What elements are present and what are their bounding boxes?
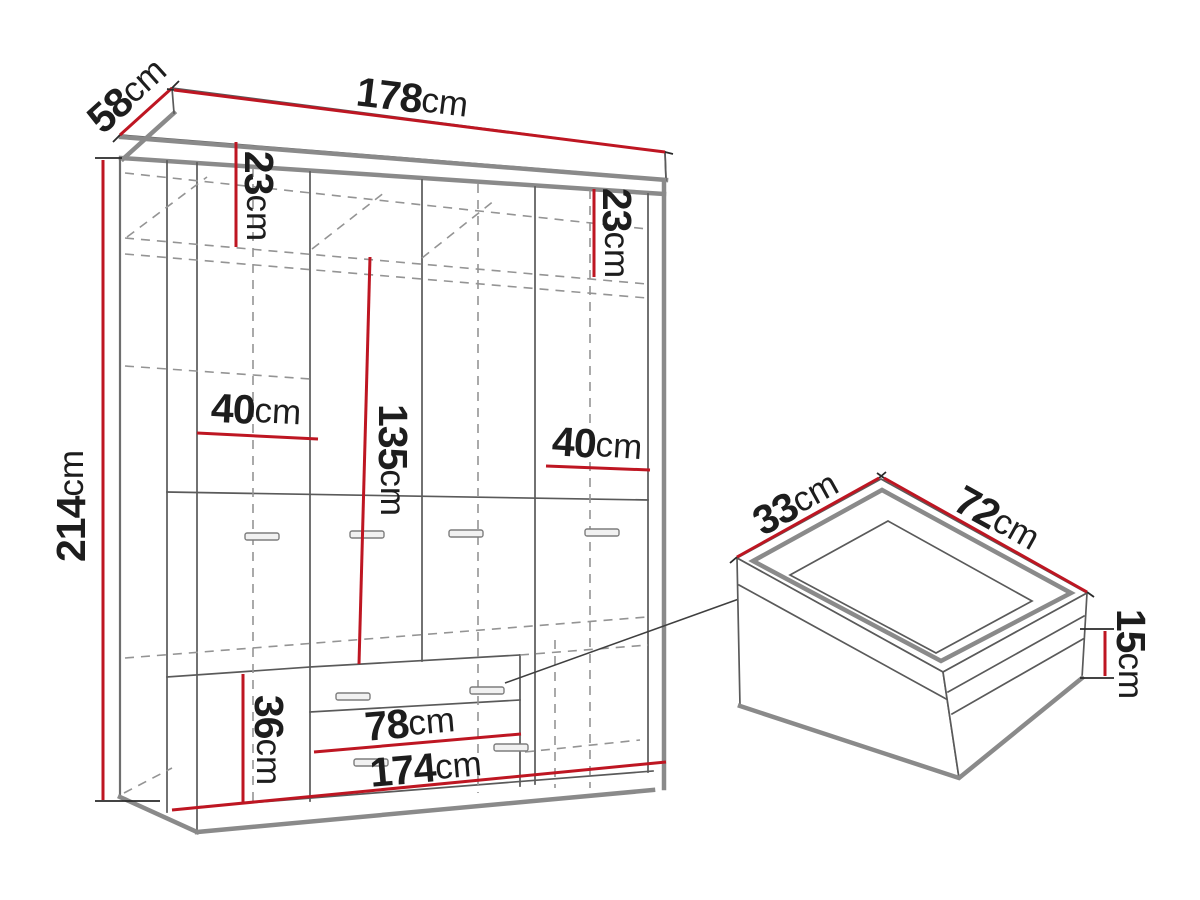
door2-handle xyxy=(350,531,384,538)
label-36: 36cm xyxy=(246,695,292,785)
dim-unit: cm xyxy=(419,81,470,125)
dim-value: 135 xyxy=(370,404,416,470)
door4-handle xyxy=(585,529,619,536)
dim-unit: cm xyxy=(239,194,278,241)
dim-value: 214 xyxy=(48,495,94,562)
dim-value: 23 xyxy=(594,188,640,232)
dim-unit: cm xyxy=(52,450,91,497)
dim-unit: cm xyxy=(597,231,636,278)
label-174: 174cm xyxy=(368,740,484,796)
label-23-left: 23cm xyxy=(236,151,282,241)
dim-value: 40 xyxy=(210,385,256,433)
dim-unit: cm xyxy=(433,744,483,787)
label-drawer-15: 15cm xyxy=(1108,609,1154,699)
dim-value: 15 xyxy=(1108,609,1154,653)
wardrobe-dimension-diagram: 58cm 178cm 214cm 23cm 23cm 40cm 135cm 40… xyxy=(0,0,1200,900)
door1-handle xyxy=(245,533,279,540)
drawer-leader-line xyxy=(505,595,750,683)
label-height-214: 214cm xyxy=(48,450,94,562)
label-135: 135cm xyxy=(370,404,416,516)
drawer1-handle-left xyxy=(336,693,370,700)
dim-unit: cm xyxy=(254,391,303,432)
plinth-left-edge xyxy=(120,797,197,832)
dim-value: 23 xyxy=(236,151,282,195)
diagram-canvas: 58cm 178cm 214cm 23cm 23cm 40cm 135cm 40… xyxy=(0,0,1200,900)
dim-unit: cm xyxy=(407,700,457,743)
door3-handle xyxy=(449,530,483,537)
drawer1-handle-right xyxy=(470,687,504,694)
label-23-right: 23cm xyxy=(594,188,640,278)
label-40-right: 40cm xyxy=(551,418,644,470)
dim-unit: cm xyxy=(1111,652,1150,699)
dim-unit: cm xyxy=(594,425,643,467)
dim-value: 36 xyxy=(246,695,292,739)
plinth-front-edge xyxy=(197,790,653,832)
dim-value: 178 xyxy=(354,68,425,122)
dim-line-135 xyxy=(359,257,370,664)
drawer2-handle-right xyxy=(494,744,528,751)
dim-unit: cm xyxy=(249,738,288,785)
bottom-section-line xyxy=(167,667,310,677)
label-40-left: 40cm xyxy=(210,385,303,436)
dim-value: 78 xyxy=(363,700,411,750)
dim-value: 174 xyxy=(368,744,438,796)
dim-line-40-left xyxy=(197,433,318,439)
dim-value: 40 xyxy=(551,418,598,467)
dim-unit: cm xyxy=(373,469,412,516)
